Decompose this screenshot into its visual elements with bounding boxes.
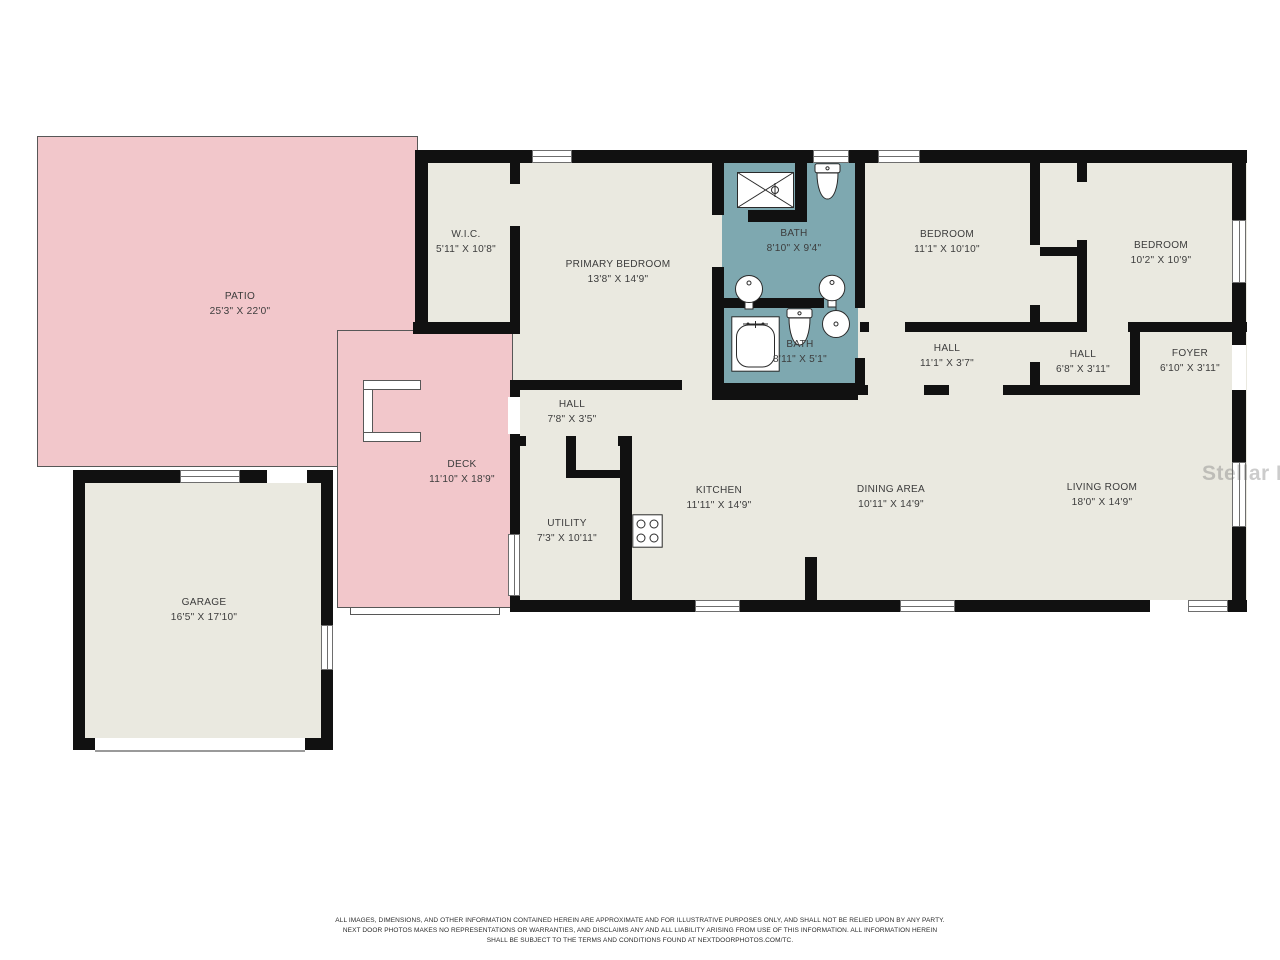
patio-steps [363, 432, 421, 442]
wall-segment [415, 150, 428, 334]
deck-door-opening [508, 397, 520, 434]
room-dims: 11'10" X 18'9" [429, 472, 495, 487]
window [508, 534, 520, 596]
room-name: GARAGE [171, 595, 238, 610]
room-dims: 8'11" X 5'1" [773, 352, 827, 367]
room-dims: 25'3" X 22'0" [210, 304, 271, 319]
wall-segment [73, 470, 85, 750]
room-name: KITCHEN [686, 483, 751, 498]
wall-segment [510, 380, 682, 390]
wall-segment [1077, 160, 1087, 182]
wall-segment [805, 557, 817, 602]
floor-plan: PATIO 25'3" X 22'0" DECK 11'10" X 18'9" … [0, 0, 1280, 960]
wall-segment [1232, 283, 1246, 345]
room-dims: 7'8" X 3'5" [548, 412, 597, 427]
room-name: UTILITY [537, 516, 597, 531]
wall-segment [712, 160, 724, 215]
window [1188, 600, 1228, 612]
room-name: LIVING ROOM [1067, 480, 1137, 495]
pedestal-sink-icon [818, 274, 846, 308]
window [1232, 220, 1246, 283]
toilet-icon [814, 163, 841, 200]
room-dims: 18'0" X 14'9" [1067, 495, 1137, 510]
room-dims: 16'5" X 17'10" [171, 610, 238, 625]
room-label-patio: PATIO 25'3" X 22'0" [210, 289, 271, 319]
pedestal-sink-icon [734, 274, 764, 310]
room-label-hall-bedrooms: HALL 11'1" X 3'7" [920, 341, 974, 371]
room-dims: 11'11" X 14'9" [686, 498, 751, 513]
room-label-living: LIVING ROOM 18'0" X 14'9" [1067, 480, 1137, 510]
window [321, 625, 333, 670]
patio-steps [363, 380, 421, 390]
wall-segment [510, 160, 520, 184]
wall-segment [1232, 390, 1246, 462]
wall-segment [510, 596, 520, 612]
room-dims: 10'11" X 14'9" [857, 497, 925, 512]
room-name: W.I.C. [436, 227, 496, 242]
room-name: BEDROOM [1131, 238, 1192, 253]
wall-segment [620, 436, 632, 612]
room-label-deck: DECK 11'10" X 18'9" [429, 457, 495, 487]
room-label-bath-main: BATH 8'10" X 9'4" [767, 226, 822, 256]
room-name: BATH [773, 337, 827, 352]
window [878, 150, 920, 163]
wall-segment [855, 358, 865, 395]
wall-segment [413, 322, 520, 334]
room-name: PATIO [210, 289, 271, 304]
room-label-garage: GARAGE 16'5" X 17'10" [171, 595, 238, 625]
room-dims: 13'8" X 14'9" [566, 272, 671, 287]
room-label-utility: UTILITY 7'3" X 10'11" [537, 516, 597, 546]
wall-segment [860, 322, 869, 332]
disclaimer-line: ALL IMAGES, DIMENSIONS, AND OTHER INFORM… [0, 916, 1280, 926]
wall-segment [1128, 322, 1247, 332]
room-label-primary-bedroom: PRIMARY BEDROOM 13'8" X 14'9" [566, 257, 671, 287]
deck-steps [350, 607, 500, 615]
room-name: HALL [1056, 347, 1110, 362]
room-label-bedroom-middle: BEDROOM 11'1" X 10'10" [914, 227, 980, 257]
room-label-kitchen: KITCHEN 11'11" X 14'9" [686, 483, 751, 513]
room-name: DINING AREA [857, 482, 925, 497]
room-dims: 11'1" X 10'10" [914, 242, 980, 257]
wall-segment [1130, 322, 1140, 395]
room-dims: 6'8" X 3'11" [1056, 362, 1110, 377]
wall-segment [510, 434, 520, 534]
window [532, 150, 572, 163]
room-label-wic: W.I.C. 5'11" X 10'8" [436, 227, 496, 257]
window [813, 150, 849, 163]
room-label-bedroom-right: BEDROOM 10'2" X 10'9" [1131, 238, 1192, 268]
room-dims: 10'2" X 10'9" [1131, 253, 1192, 268]
room-label-bath-second: BATH 8'11" X 5'1" [773, 337, 827, 367]
wall-segment [321, 670, 333, 750]
door-opening [267, 470, 307, 483]
room-dims: 5'11" X 10'8" [436, 242, 496, 257]
garage-door-opening [95, 738, 305, 752]
rear-door-opening [1150, 600, 1188, 612]
room-label-hall-rear: HALL 7'8" X 3'5" [548, 397, 597, 427]
stellar-mls-watermark: Stellar MLS [1202, 462, 1280, 486]
wall-segment [510, 380, 520, 397]
wall-segment [924, 385, 949, 395]
wall-segment [795, 160, 807, 222]
room-name: BATH [767, 226, 822, 241]
wall-segment [1030, 305, 1040, 332]
room-dims: 6'10" X 3'11" [1160, 361, 1220, 376]
room-name: FOYER [1160, 346, 1220, 361]
room-dims: 11'1" X 3'7" [920, 356, 974, 371]
wall-segment [1077, 240, 1087, 322]
window [180, 470, 240, 483]
disclaimer-line: SHALL BE SUBJECT TO THE TERMS AND CONDIT… [0, 936, 1280, 946]
room-name: BEDROOM [914, 227, 980, 242]
window [900, 600, 955, 612]
wall-segment [566, 436, 576, 478]
wall-segment [510, 226, 520, 322]
room-name: HALL [548, 397, 597, 412]
wall-segment [1232, 527, 1246, 612]
room-name: HALL [920, 341, 974, 356]
wall-segment [1003, 385, 1130, 395]
wall-segment [712, 267, 724, 383]
wall-segment [1030, 362, 1040, 385]
room-dims: 7'3" X 10'11" [537, 531, 597, 546]
front-door-opening [1232, 345, 1246, 390]
wall-segment [1030, 160, 1040, 245]
round-sink-icon [821, 307, 851, 339]
wall-segment [1232, 150, 1246, 220]
wall-segment [712, 383, 858, 400]
wall-segment [855, 150, 865, 308]
room-dims: 8'10" X 9'4" [767, 241, 822, 256]
shower-icon [737, 172, 794, 208]
room-name: PRIMARY BEDROOM [566, 257, 671, 272]
disclaimer-line: NEXT DOOR PHOTOS MAKES NO REPRESENTATION… [0, 926, 1280, 936]
window [695, 600, 740, 612]
disclaimer-text: ALL IMAGES, DIMENSIONS, AND OTHER INFORM… [0, 916, 1280, 946]
room-name: DECK [429, 457, 495, 472]
stove-icon [632, 514, 663, 548]
room-label-hall-foyer: HALL 6'8" X 3'11" [1056, 347, 1110, 377]
wall-segment [1040, 322, 1087, 332]
wall-segment [321, 470, 333, 625]
room-label-foyer: FOYER 6'10" X 3'11" [1160, 346, 1220, 376]
wall-segment [905, 322, 1040, 332]
room-label-dining: DINING AREA 10'11" X 14'9" [857, 482, 925, 512]
